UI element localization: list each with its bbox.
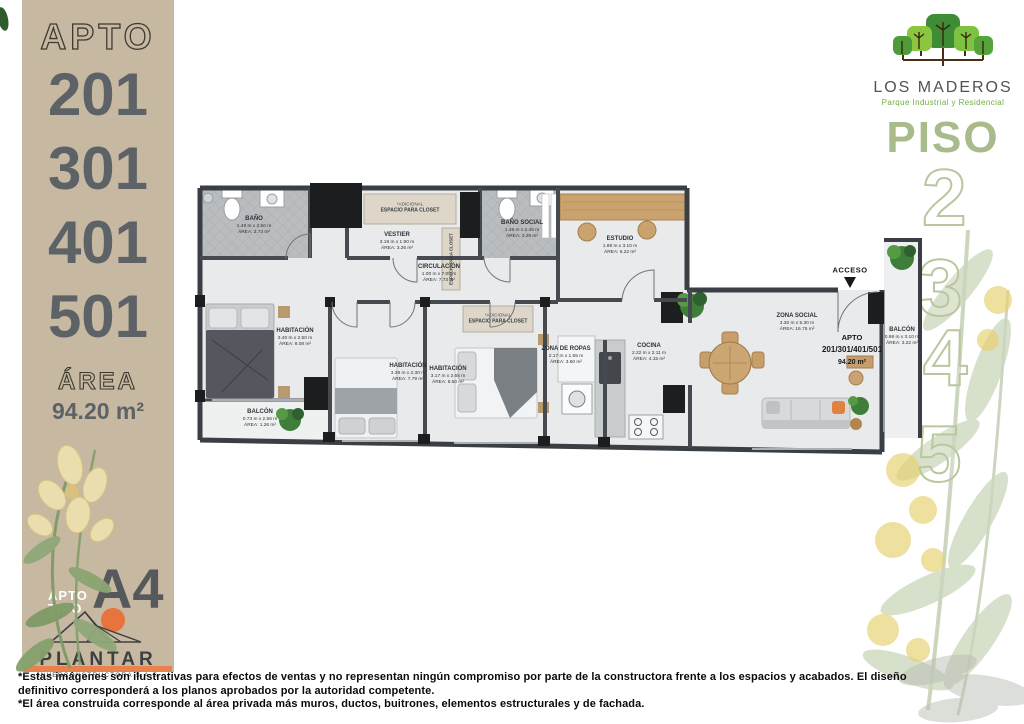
unit-number-401: 401 (22, 206, 174, 280)
flyer-page: APTO 201 301 401 501 ÁREA 94.20 m² APTO … (0, 0, 1024, 724)
area-value: 94.20 m² (22, 398, 174, 425)
disclaimer-line-3: *El área construida corresponde al área … (18, 698, 1013, 712)
closet-label-vertical: ESPACIO PARA CLOSET (449, 233, 454, 285)
botanical-flowers-left (0, 430, 190, 675)
unit-number-201: 201 (22, 58, 174, 132)
room-label-habitacion-principal: HABITACIÓN 3.40 m x 2.50 m ÁREA: 8.08 m² (276, 328, 313, 348)
room-label-balcon: BALCÓN 0.73 m x 2.56 m ÁREA: 1.26 m² (243, 409, 277, 429)
room-label-balcon-derecho: BALCÓN 0.98 m x 3.10 m ÁREA: 3.22 m² (885, 327, 919, 347)
apto-heading: APTO (22, 16, 174, 58)
corner-leaf-decoration (0, 6, 14, 32)
room-label-zona-ropas: ZONA DE ROPAS 2.17 m x 1.55 m ÁREA: 3.60… (541, 346, 590, 366)
project-name: LOS MADEROS (868, 79, 1018, 97)
floorplan-labels: BAÑO 1.49 m x 2.50 m ÁREA: 3.73 m² VESTI… (192, 180, 927, 470)
room-label-circulacion: CIRCULACIÓN 1.00 m x 7.05 m ÁREA: 7.73 m… (418, 264, 460, 284)
disclaimer-line-1: *Estas imágenes son ilustrativas para ef… (18, 671, 1013, 685)
apto-unit-tag: APTO 201/301/401/501 94.20 m² (822, 332, 882, 368)
unit-number-501: 501 (22, 280, 174, 354)
room-label-habitacion-3: HABITACIÓN 3.17 m x 2.65 m ÁREA: 8.50 m² (429, 366, 466, 386)
project-logo-block: LOS MADEROS Parque Industrial y Residenc… (868, 8, 1018, 163)
closet-note-vestier: *ADICIONAL ESPACIO PARA CLOSET (381, 201, 440, 214)
area-heading: ÁREA (22, 368, 174, 396)
room-label-zona-social: ZONA SOCIAL 3.30 m x 5.30 m ÁREA: 16.75 … (776, 313, 817, 333)
room-label-bano-social: BAÑO SOCIAL 1.48 m x 2.45 m ÁREA: 3.29 m… (501, 220, 543, 240)
disclaimer-line-2: definitivo corresponderá a los planos ap… (18, 685, 1013, 699)
piso-heading: PISO (868, 113, 1018, 163)
trees-icon (883, 8, 1003, 72)
closet-note-habitacion: *ADICIONAL ESPACIO PARA CLOSET (469, 312, 528, 325)
room-label-habitacion-2: HABITACIÓN 3.39 m x 2.30 m ÁREA: 7.79 m² (389, 363, 426, 383)
room-label-estudio: ESTUDIO 1.98 m x 3.10 m ÁREA: 6.22 m² (603, 236, 637, 256)
room-label-bano: BAÑO 1.49 m x 2.50 m ÁREA: 3.73 m² (237, 216, 271, 236)
unit-number-301: 301 (22, 132, 174, 206)
disclaimer-footer: *Estas imágenes son ilustrativas para ef… (18, 671, 1013, 712)
floor-number-2: 2 (922, 152, 967, 244)
project-subtitle: Parque Industrial y Residencial (868, 98, 1018, 107)
room-label-cocina: COCINA 2.22 m x 2.11 m ÁREA: 4.15 m² (632, 343, 666, 363)
floor-number-4: 4 (923, 312, 968, 404)
acceso-label: ACCESO (832, 266, 867, 275)
room-label-vestier: VESTIER 3.19 m x 1.90 m ÁREA: 3.26 m² (380, 232, 414, 252)
